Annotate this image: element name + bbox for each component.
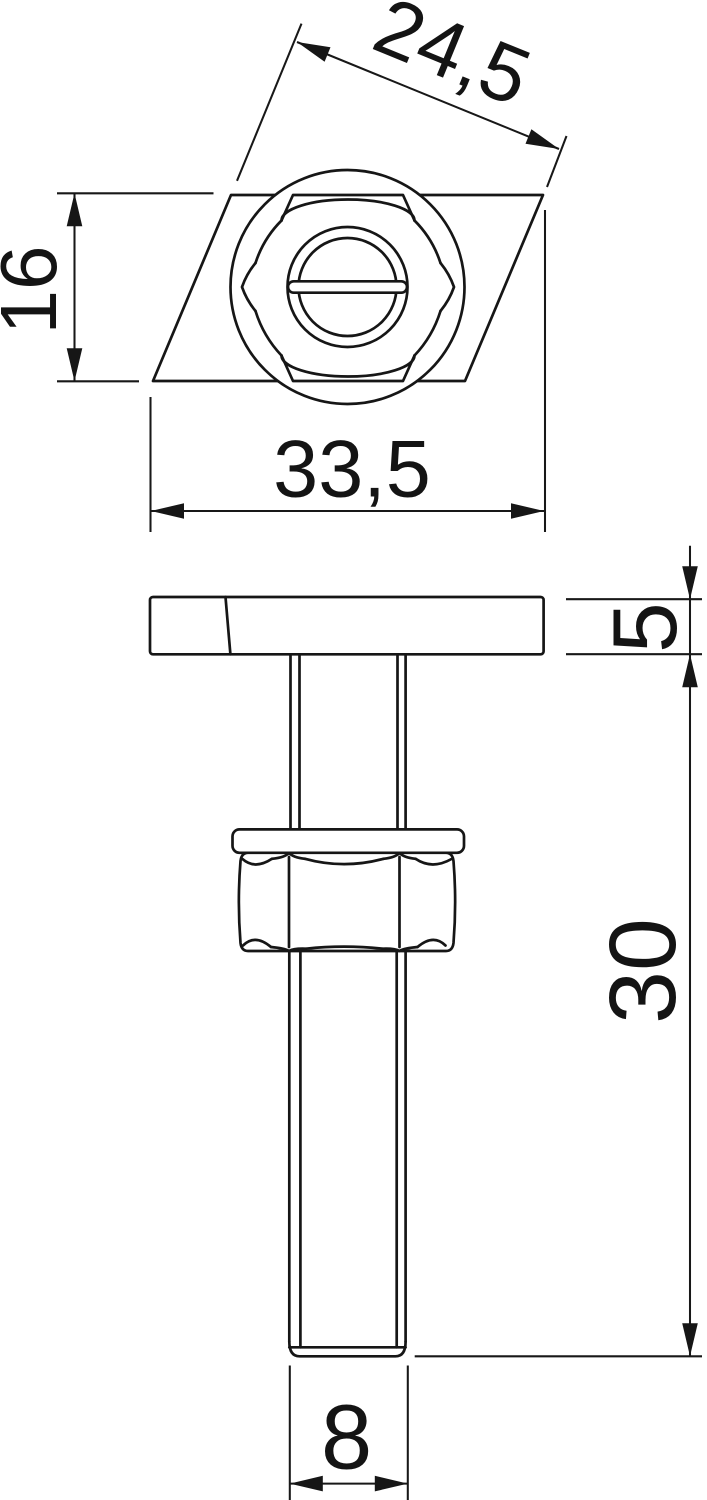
svg-text:16: 16 xyxy=(0,246,73,335)
svg-text:8: 8 xyxy=(321,1387,372,1489)
svg-text:30: 30 xyxy=(590,918,696,1024)
svg-text:5: 5 xyxy=(595,602,696,653)
svg-text:33,5: 33,5 xyxy=(273,424,431,514)
